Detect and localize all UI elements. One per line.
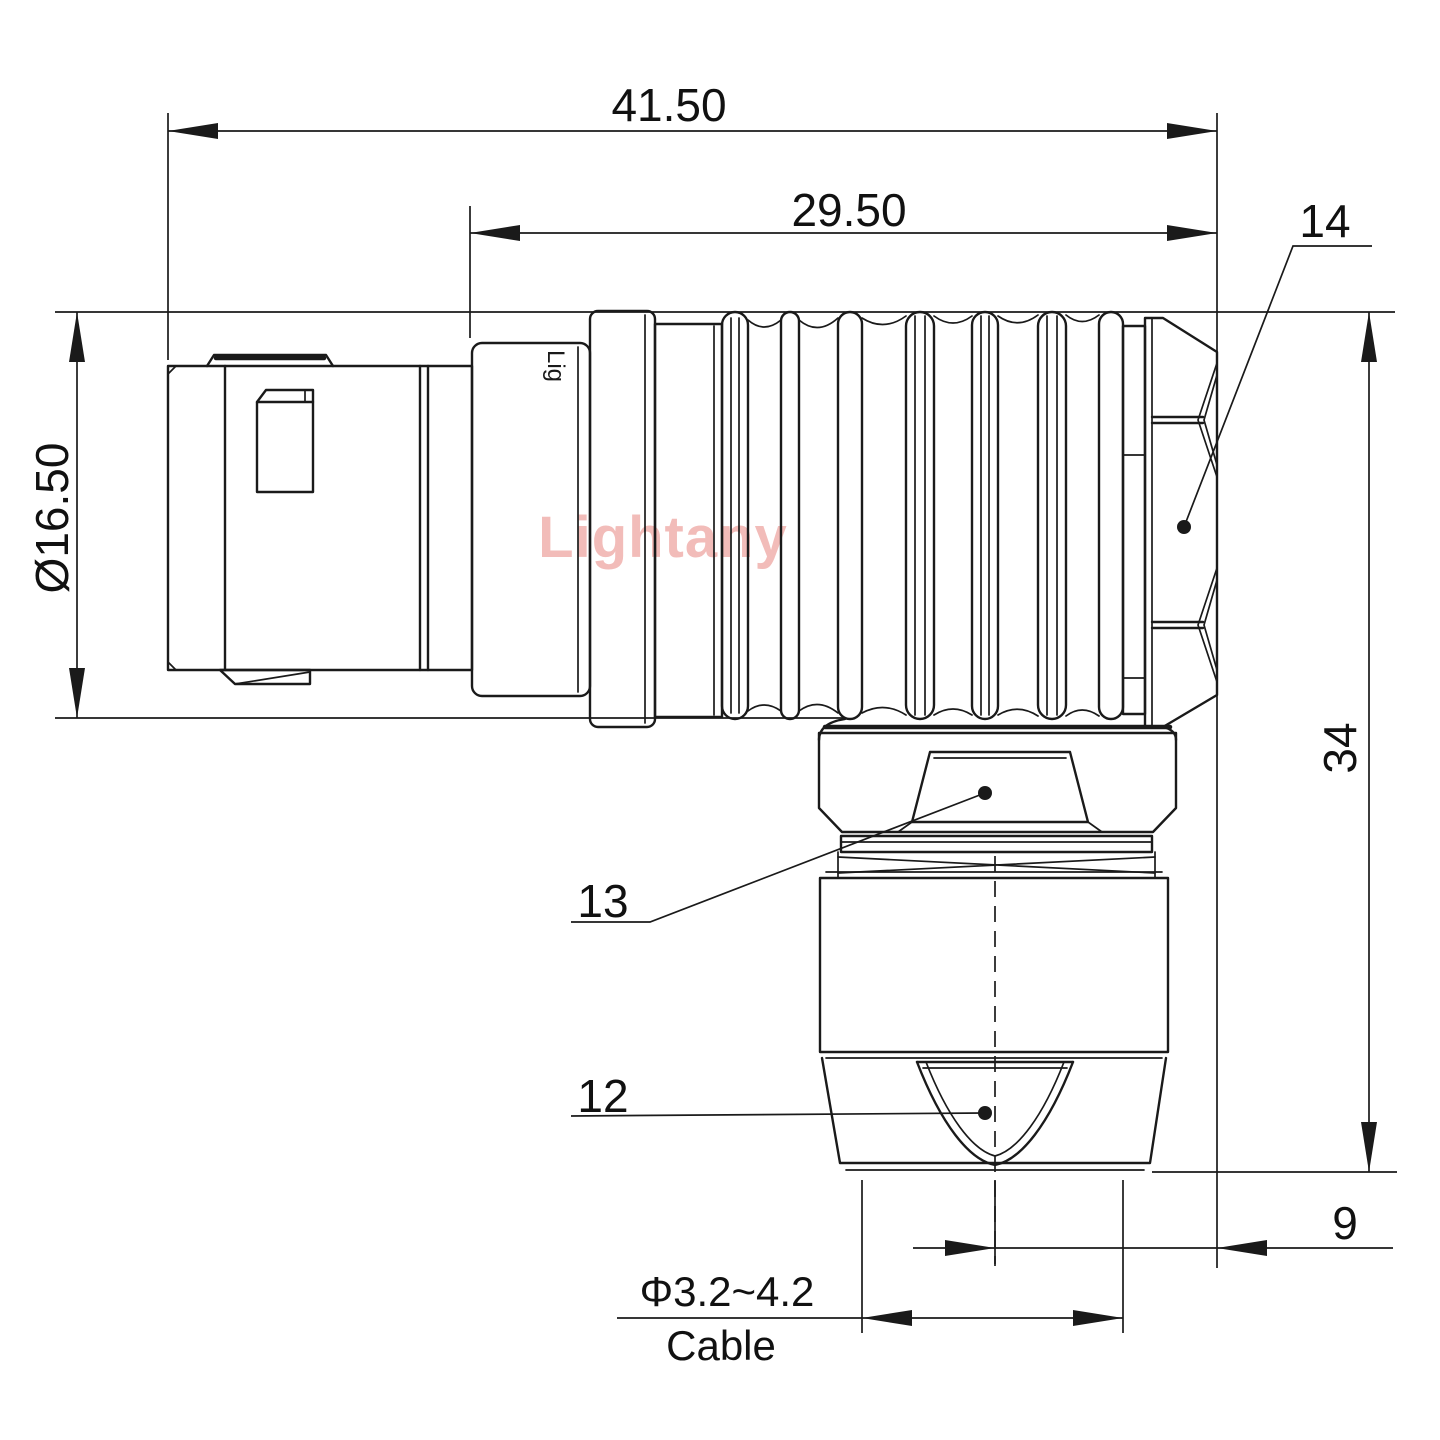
gland-hex — [819, 727, 1176, 832]
dimension-outer-diameter: Ø16.50 — [26, 312, 85, 718]
leader-gland-hex-13: 13 — [571, 786, 992, 927]
dimension-offset: 9 — [913, 1197, 1393, 1256]
dimension-body-length: 29.50 — [470, 184, 1217, 241]
technical-drawing-page: Lightany 41.50 29.50 Ø16.50 34 — [0, 0, 1440, 1440]
sleeve-print-text: Lig — [542, 350, 569, 382]
rear-barrel — [168, 355, 472, 684]
leader-cable-clamp-12: 12 — [571, 1070, 992, 1122]
dim-body-length-value: 29.50 — [791, 184, 906, 236]
dim-height-value: 34 — [1314, 722, 1366, 773]
watermark-text: Lightany — [538, 505, 788, 570]
leader-backnut-14: 14 — [1177, 195, 1372, 534]
part-label-gland-hex: 13 — [577, 875, 628, 927]
technical-drawing-canvas: Lightany 41.50 29.50 Ø16.50 34 — [0, 0, 1440, 1440]
dimension-height: 34 — [1314, 312, 1377, 1172]
part-label-cable-clamp: 12 — [577, 1070, 628, 1122]
dim-offset-value: 9 — [1332, 1197, 1358, 1249]
dimension-total-length: 41.50 — [168, 79, 1217, 139]
dim-cable-range-value: Φ3.2~4.2 — [640, 1268, 815, 1315]
part-label-backnut: 14 — [1299, 195, 1350, 247]
connector-body: Lig — [168, 311, 1217, 1264]
dimension-cable: Φ3.2~4.2 Cable — [617, 1268, 1123, 1369]
dim-outer-diameter-value: Ø16.50 — [26, 443, 78, 594]
elbow-transition — [819, 719, 1176, 740]
dim-cable-label: Cable — [666, 1322, 776, 1369]
clamp-cylinder — [820, 872, 1168, 1058]
extension-lines — [55, 113, 1397, 1333]
dim-total-length-value: 41.50 — [611, 79, 726, 131]
